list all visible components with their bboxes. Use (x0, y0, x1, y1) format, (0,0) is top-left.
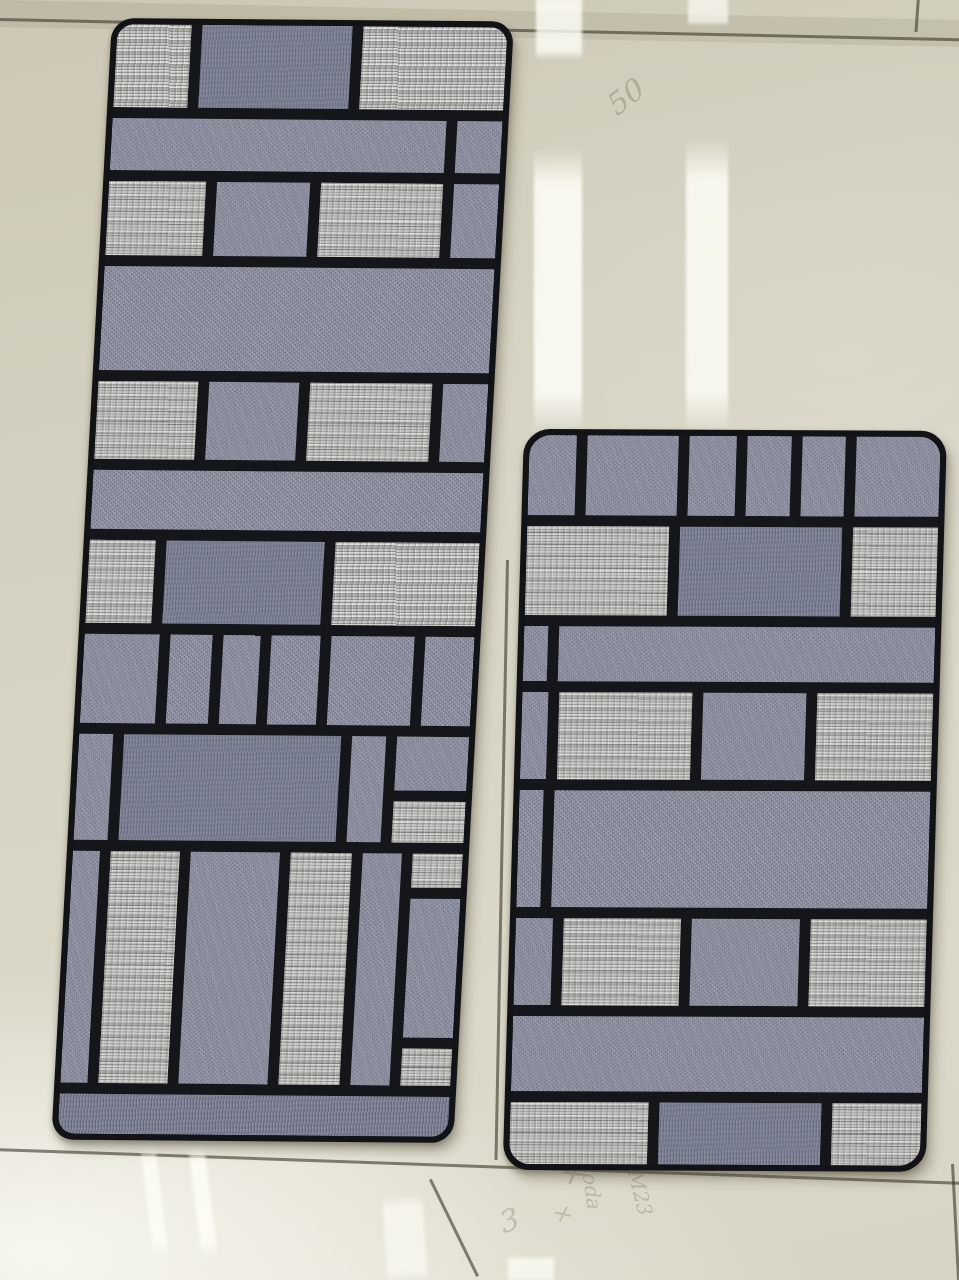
mat-row (105, 181, 499, 258)
mat-cell-light (400, 1049, 452, 1087)
mat-row (509, 1102, 922, 1166)
mat-row (73, 733, 469, 843)
mat-cell-light (94, 381, 199, 460)
mat-cell-dark (119, 734, 341, 843)
mat-cell-light (808, 919, 927, 1007)
mat-row (99, 266, 495, 373)
mat-row (80, 633, 475, 725)
mat-cell-light (113, 24, 191, 108)
photo-scene: 50++3sodaM23 (0, 0, 959, 1280)
mat-row (516, 790, 930, 908)
mat-cell-medium (513, 918, 553, 1005)
light-reflection (686, 138, 728, 433)
mat-cell-light (391, 801, 465, 843)
mat-cell-medium (454, 121, 502, 174)
mat-pattern (509, 435, 941, 1166)
mat-cell-medium (394, 736, 469, 791)
mat-cell-medium (520, 692, 548, 779)
mat-cell-light (815, 694, 933, 782)
mat-cell-light (411, 854, 463, 888)
mat-cell-medium (511, 1016, 924, 1093)
mat-cell-medium (327, 636, 415, 726)
mat-cell-light (317, 183, 444, 258)
mat-cell-dark (658, 1103, 822, 1166)
mat-cell-medium (403, 899, 461, 1038)
mat-cell-light (525, 526, 669, 616)
mat-pattern (58, 24, 508, 1137)
mat-cell-medium (351, 853, 402, 1085)
mat-cell-medium (421, 636, 475, 725)
mat-cell-medium (346, 736, 386, 843)
light-reflection (188, 1144, 218, 1257)
mat-cell-medium (166, 634, 212, 723)
mat-cell-medium (516, 790, 543, 906)
mat-cell-medium (689, 918, 800, 1006)
mat-cell-medium (523, 626, 549, 681)
mat-cell-medium (746, 436, 792, 516)
mat-cell-medium (267, 635, 321, 724)
mat-cell-light (98, 851, 180, 1084)
mat-cell-dark (677, 527, 842, 617)
mat-cell-medium (551, 791, 930, 909)
light-reflection (382, 1193, 428, 1280)
mat-cell-light (105, 181, 206, 256)
mat-cell-light (831, 1103, 922, 1165)
mat-row (85, 539, 479, 625)
floor-marking: 50 (598, 72, 650, 123)
mat-row (110, 118, 503, 174)
mat-cell-dark (198, 25, 353, 109)
mat-cell-medium (688, 436, 738, 516)
light-reflection (508, 1256, 554, 1280)
light-reflection (536, 0, 582, 60)
mat-cell-medium (213, 182, 310, 257)
mat-cell-medium (439, 384, 488, 462)
light-reflection (688, 0, 728, 26)
mat-cell-medium (586, 435, 679, 516)
mat-cell-dark (163, 540, 326, 624)
mat-row (513, 918, 927, 1007)
mat-row (113, 24, 507, 110)
mat-cell-light (332, 542, 480, 626)
mat-cell-medium (558, 626, 936, 683)
mat-cell-light (278, 853, 352, 1086)
mat-cell-medium (179, 852, 280, 1085)
mat-cell-light (562, 918, 681, 1006)
mat-cell-medium (90, 470, 483, 532)
mat-cell-medium (73, 733, 113, 840)
mat-row (525, 526, 939, 617)
mat-cell-medium (80, 633, 160, 723)
light-reflection (140, 1144, 169, 1257)
mat-row (94, 381, 488, 462)
kitchen-mat-short (503, 429, 947, 1172)
grout-line (429, 1179, 479, 1277)
floor-marking: + (548, 1196, 576, 1230)
light-reflection (534, 146, 582, 433)
mat-row (523, 626, 936, 683)
mat-cell-light (85, 539, 156, 623)
mat-cell-medium (528, 435, 578, 515)
mat-cell-medium (206, 382, 299, 461)
grout-line (914, 0, 920, 32)
mat-row (511, 1016, 924, 1093)
mat-row (520, 692, 934, 781)
mat-cell-medium (855, 436, 941, 516)
mat-cell-light (509, 1102, 649, 1165)
mat-cell-light (557, 692, 693, 780)
mat-cell-dark (58, 1094, 450, 1137)
mat-cell-stack (400, 854, 463, 1087)
mat-row (90, 470, 483, 532)
mat-cell-medium (219, 635, 261, 724)
mat-cell-light (851, 528, 939, 618)
mat-cell-medium (60, 851, 100, 1083)
mat-cell-light (360, 26, 508, 110)
mat-row (60, 851, 463, 1087)
mat-cell-medium (701, 693, 807, 781)
mat-cell-medium (800, 436, 846, 516)
floor-marking: 3 (492, 1201, 522, 1240)
mat-row (58, 1094, 450, 1137)
mat-cell-light (306, 383, 433, 462)
mat-row (528, 435, 941, 517)
mat-cell-stack (391, 736, 469, 843)
mat-cell-medium (99, 266, 495, 373)
mat-cell-medium (451, 184, 500, 258)
mat-cell-medium (110, 118, 446, 173)
kitchen-mat-runner (51, 18, 514, 1143)
